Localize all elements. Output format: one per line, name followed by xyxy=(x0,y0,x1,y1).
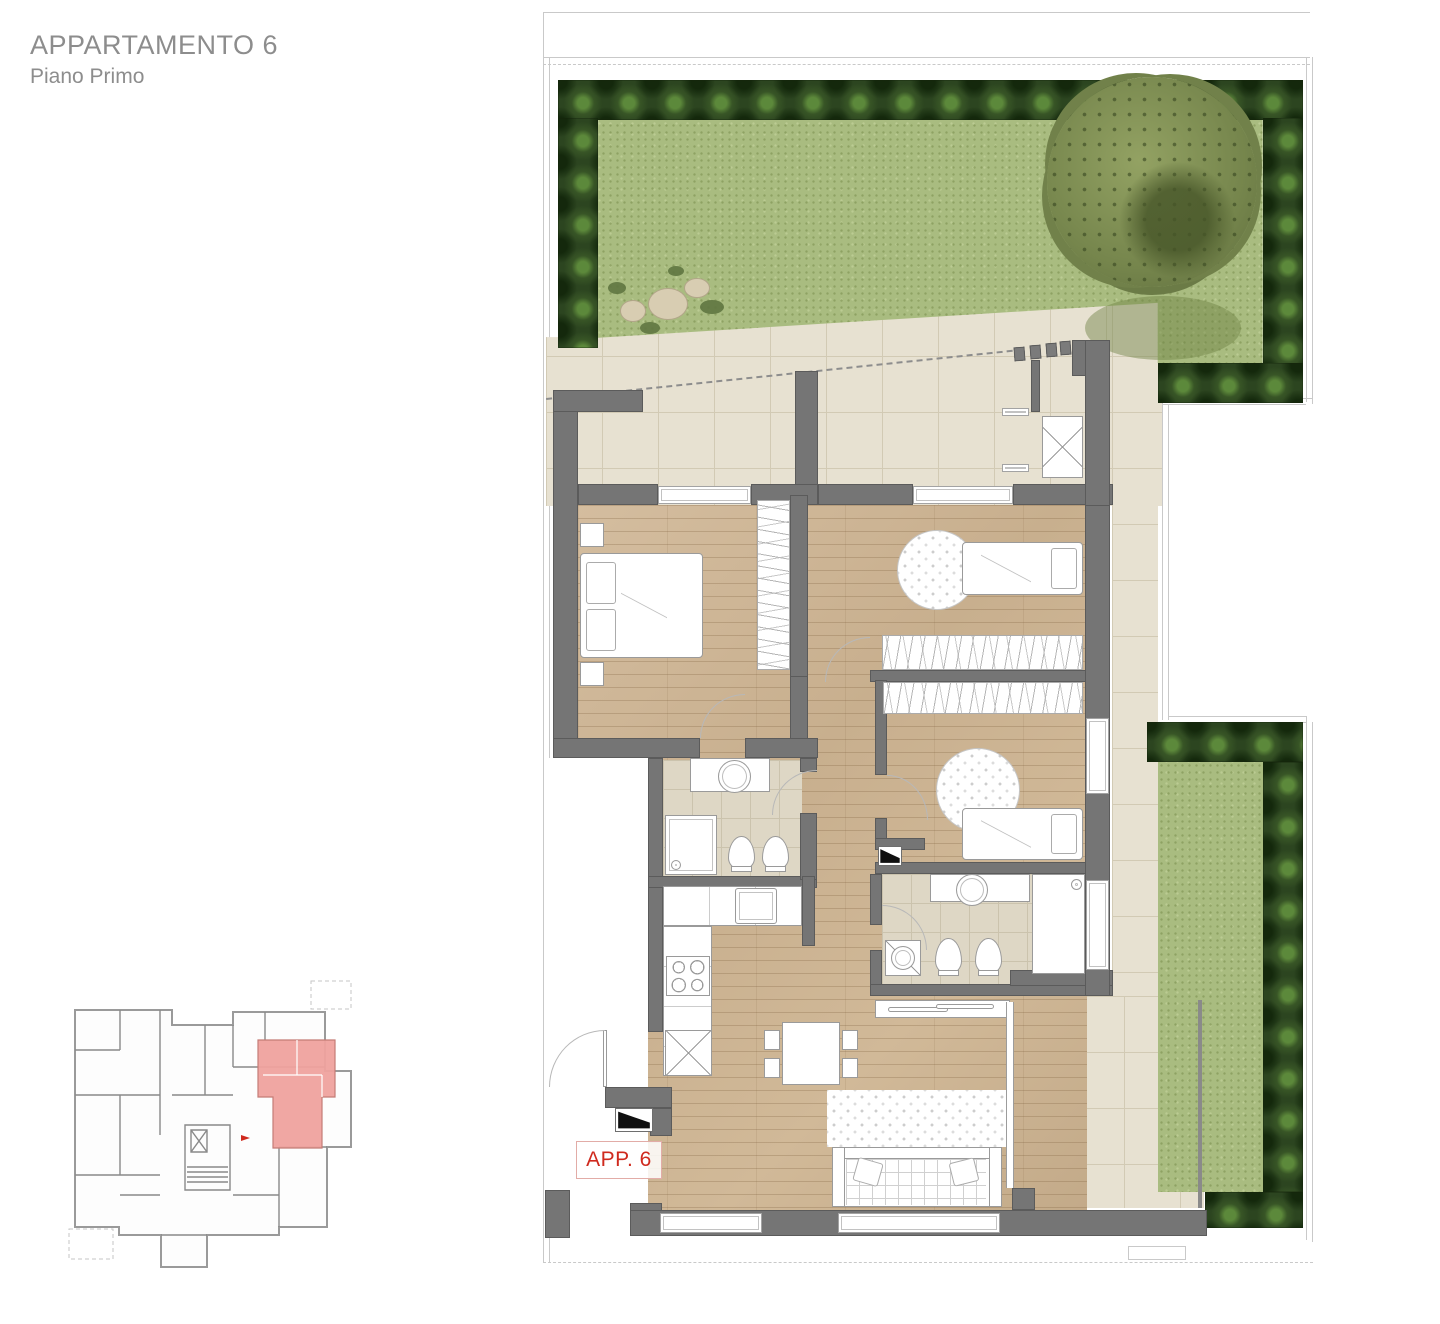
apartment-label: APP. 6 xyxy=(576,1141,662,1179)
kitchen-tall-cabinet xyxy=(665,1030,712,1076)
hedge-east-top xyxy=(1147,722,1303,762)
key-plan-drawing xyxy=(65,975,375,1268)
window-living xyxy=(838,1213,1000,1233)
tree-icon xyxy=(1047,77,1257,287)
shower-dial-icon xyxy=(1071,879,1082,890)
blanket-fold xyxy=(981,809,1031,859)
shrub xyxy=(608,282,626,294)
kitchen-counter-top xyxy=(663,886,802,926)
shaft-triangle-icon xyxy=(878,846,902,866)
rock xyxy=(684,278,710,298)
hedge-east-right xyxy=(1263,762,1303,1192)
kitchen-sink xyxy=(735,888,777,924)
boundary-dashed-line xyxy=(543,64,1310,65)
blanket-fold xyxy=(621,554,667,657)
exterior-step xyxy=(1128,1246,1186,1260)
wall-sw-stub xyxy=(545,1190,570,1238)
pillow xyxy=(586,609,616,651)
wardrobe-bedroom3 xyxy=(883,682,1083,714)
wall-bath2-west xyxy=(870,874,882,925)
boundary-line xyxy=(543,57,1310,58)
hedge-east-bottom xyxy=(1205,1192,1303,1228)
nightstand xyxy=(580,662,604,686)
dining-chair xyxy=(764,1058,780,1078)
pillar xyxy=(1030,345,1042,360)
wall-kitchen-west xyxy=(648,758,663,1032)
wall-bedroom1-south xyxy=(745,738,818,758)
bath1-shower xyxy=(665,815,717,875)
double-bed xyxy=(580,553,703,658)
window-bedroom1 xyxy=(658,486,751,504)
wall-terrace-west xyxy=(1012,1188,1035,1210)
garden-wall-line xyxy=(1198,1000,1202,1208)
bidet-tank xyxy=(765,866,786,872)
bath2-shower xyxy=(1032,874,1085,974)
sofa-back xyxy=(832,1147,1000,1159)
wall-bedroom1-south xyxy=(553,738,700,758)
dining-chair xyxy=(764,1030,780,1050)
toilet-tank xyxy=(731,866,752,872)
boundary-line xyxy=(1306,57,1307,402)
sofa-arm xyxy=(989,1147,1002,1207)
pillar xyxy=(1014,347,1026,362)
wall-right-notch xyxy=(1072,340,1086,376)
wall-left xyxy=(553,390,578,758)
wall-entry xyxy=(605,1087,672,1108)
page-subtitle: Piano Primo xyxy=(30,65,278,89)
toilet-tank xyxy=(938,970,959,976)
wall-stub xyxy=(1031,360,1040,412)
wardrobe-bedroom2 xyxy=(882,635,1083,670)
rock xyxy=(648,288,688,320)
hedge-corner xyxy=(1158,363,1303,403)
pillow xyxy=(586,562,616,604)
shaft-triangle-icon xyxy=(615,1108,653,1132)
dining-table xyxy=(782,1022,840,1085)
wall-bed3-bath2 xyxy=(875,862,1087,874)
hedge-left xyxy=(558,118,598,348)
boundary-line xyxy=(1312,722,1313,1242)
blanket-fold xyxy=(981,543,1031,594)
wall-top xyxy=(578,484,658,505)
pillar xyxy=(1060,341,1072,356)
boundary-line xyxy=(1162,398,1163,720)
wardrobe-bedroom1 xyxy=(757,500,790,670)
boundary-line xyxy=(543,12,1310,13)
boundary-line xyxy=(1312,57,1313,404)
wall-bed2-bed3 xyxy=(870,670,1087,682)
window xyxy=(1002,464,1029,472)
boundary-dashed-line xyxy=(543,1262,1313,1263)
dining-chair xyxy=(842,1030,858,1050)
floor-plan-page: APPARTAMENTO 6 Piano Primo xyxy=(0,0,1440,1324)
bidet-tank xyxy=(978,970,999,976)
shrub xyxy=(640,322,660,334)
single-bed xyxy=(962,808,1083,860)
boundary-line xyxy=(543,12,544,1262)
stove-icon xyxy=(666,956,710,996)
pillow xyxy=(1051,548,1077,589)
garden-lawn-east xyxy=(1158,762,1263,1192)
key-plan xyxy=(65,975,375,1268)
sofa-arm xyxy=(832,1147,845,1207)
pillow xyxy=(1051,814,1077,854)
hedge-right xyxy=(1263,118,1303,365)
boundary-line xyxy=(1168,404,1169,720)
window xyxy=(1002,408,1029,416)
single-bed xyxy=(962,542,1083,595)
wall-bath1-east xyxy=(800,813,817,880)
title-block: APPARTAMENTO 6 Piano Primo xyxy=(30,30,278,89)
wall-top-left-jut xyxy=(553,390,643,412)
boundary-line xyxy=(1306,716,1307,1240)
window-bath2 xyxy=(1086,880,1109,970)
dining-chair xyxy=(842,1058,858,1078)
boundary-line xyxy=(1162,404,1306,405)
pillar xyxy=(1046,343,1058,358)
wall-right-upper xyxy=(1085,340,1110,506)
bath2-basin xyxy=(956,874,988,906)
window-bedroom2 xyxy=(913,486,1013,504)
sideboard xyxy=(875,1000,1010,1018)
sliding-glass-door xyxy=(1006,1002,1014,1188)
window-bedroom3 xyxy=(1086,718,1109,794)
sofa xyxy=(832,1147,1000,1207)
wall-spine-upper xyxy=(795,371,818,485)
wall-entry xyxy=(650,1108,672,1136)
page-title: APPARTAMENTO 6 xyxy=(30,30,278,61)
shaft-skylight xyxy=(1042,416,1083,478)
sideboard-item xyxy=(936,1004,994,1009)
wall-kitchen-stub xyxy=(802,876,815,946)
living-rug xyxy=(827,1090,1007,1147)
nightstand xyxy=(580,523,604,547)
shrub xyxy=(700,300,724,314)
boundary-line xyxy=(1168,716,1306,717)
shrub xyxy=(668,266,684,276)
drain-icon xyxy=(671,860,681,870)
wall-top xyxy=(818,484,913,505)
window-kitchen xyxy=(660,1213,762,1233)
bath1-basin xyxy=(718,760,751,793)
wall-spine xyxy=(790,495,808,683)
rock xyxy=(620,300,646,322)
